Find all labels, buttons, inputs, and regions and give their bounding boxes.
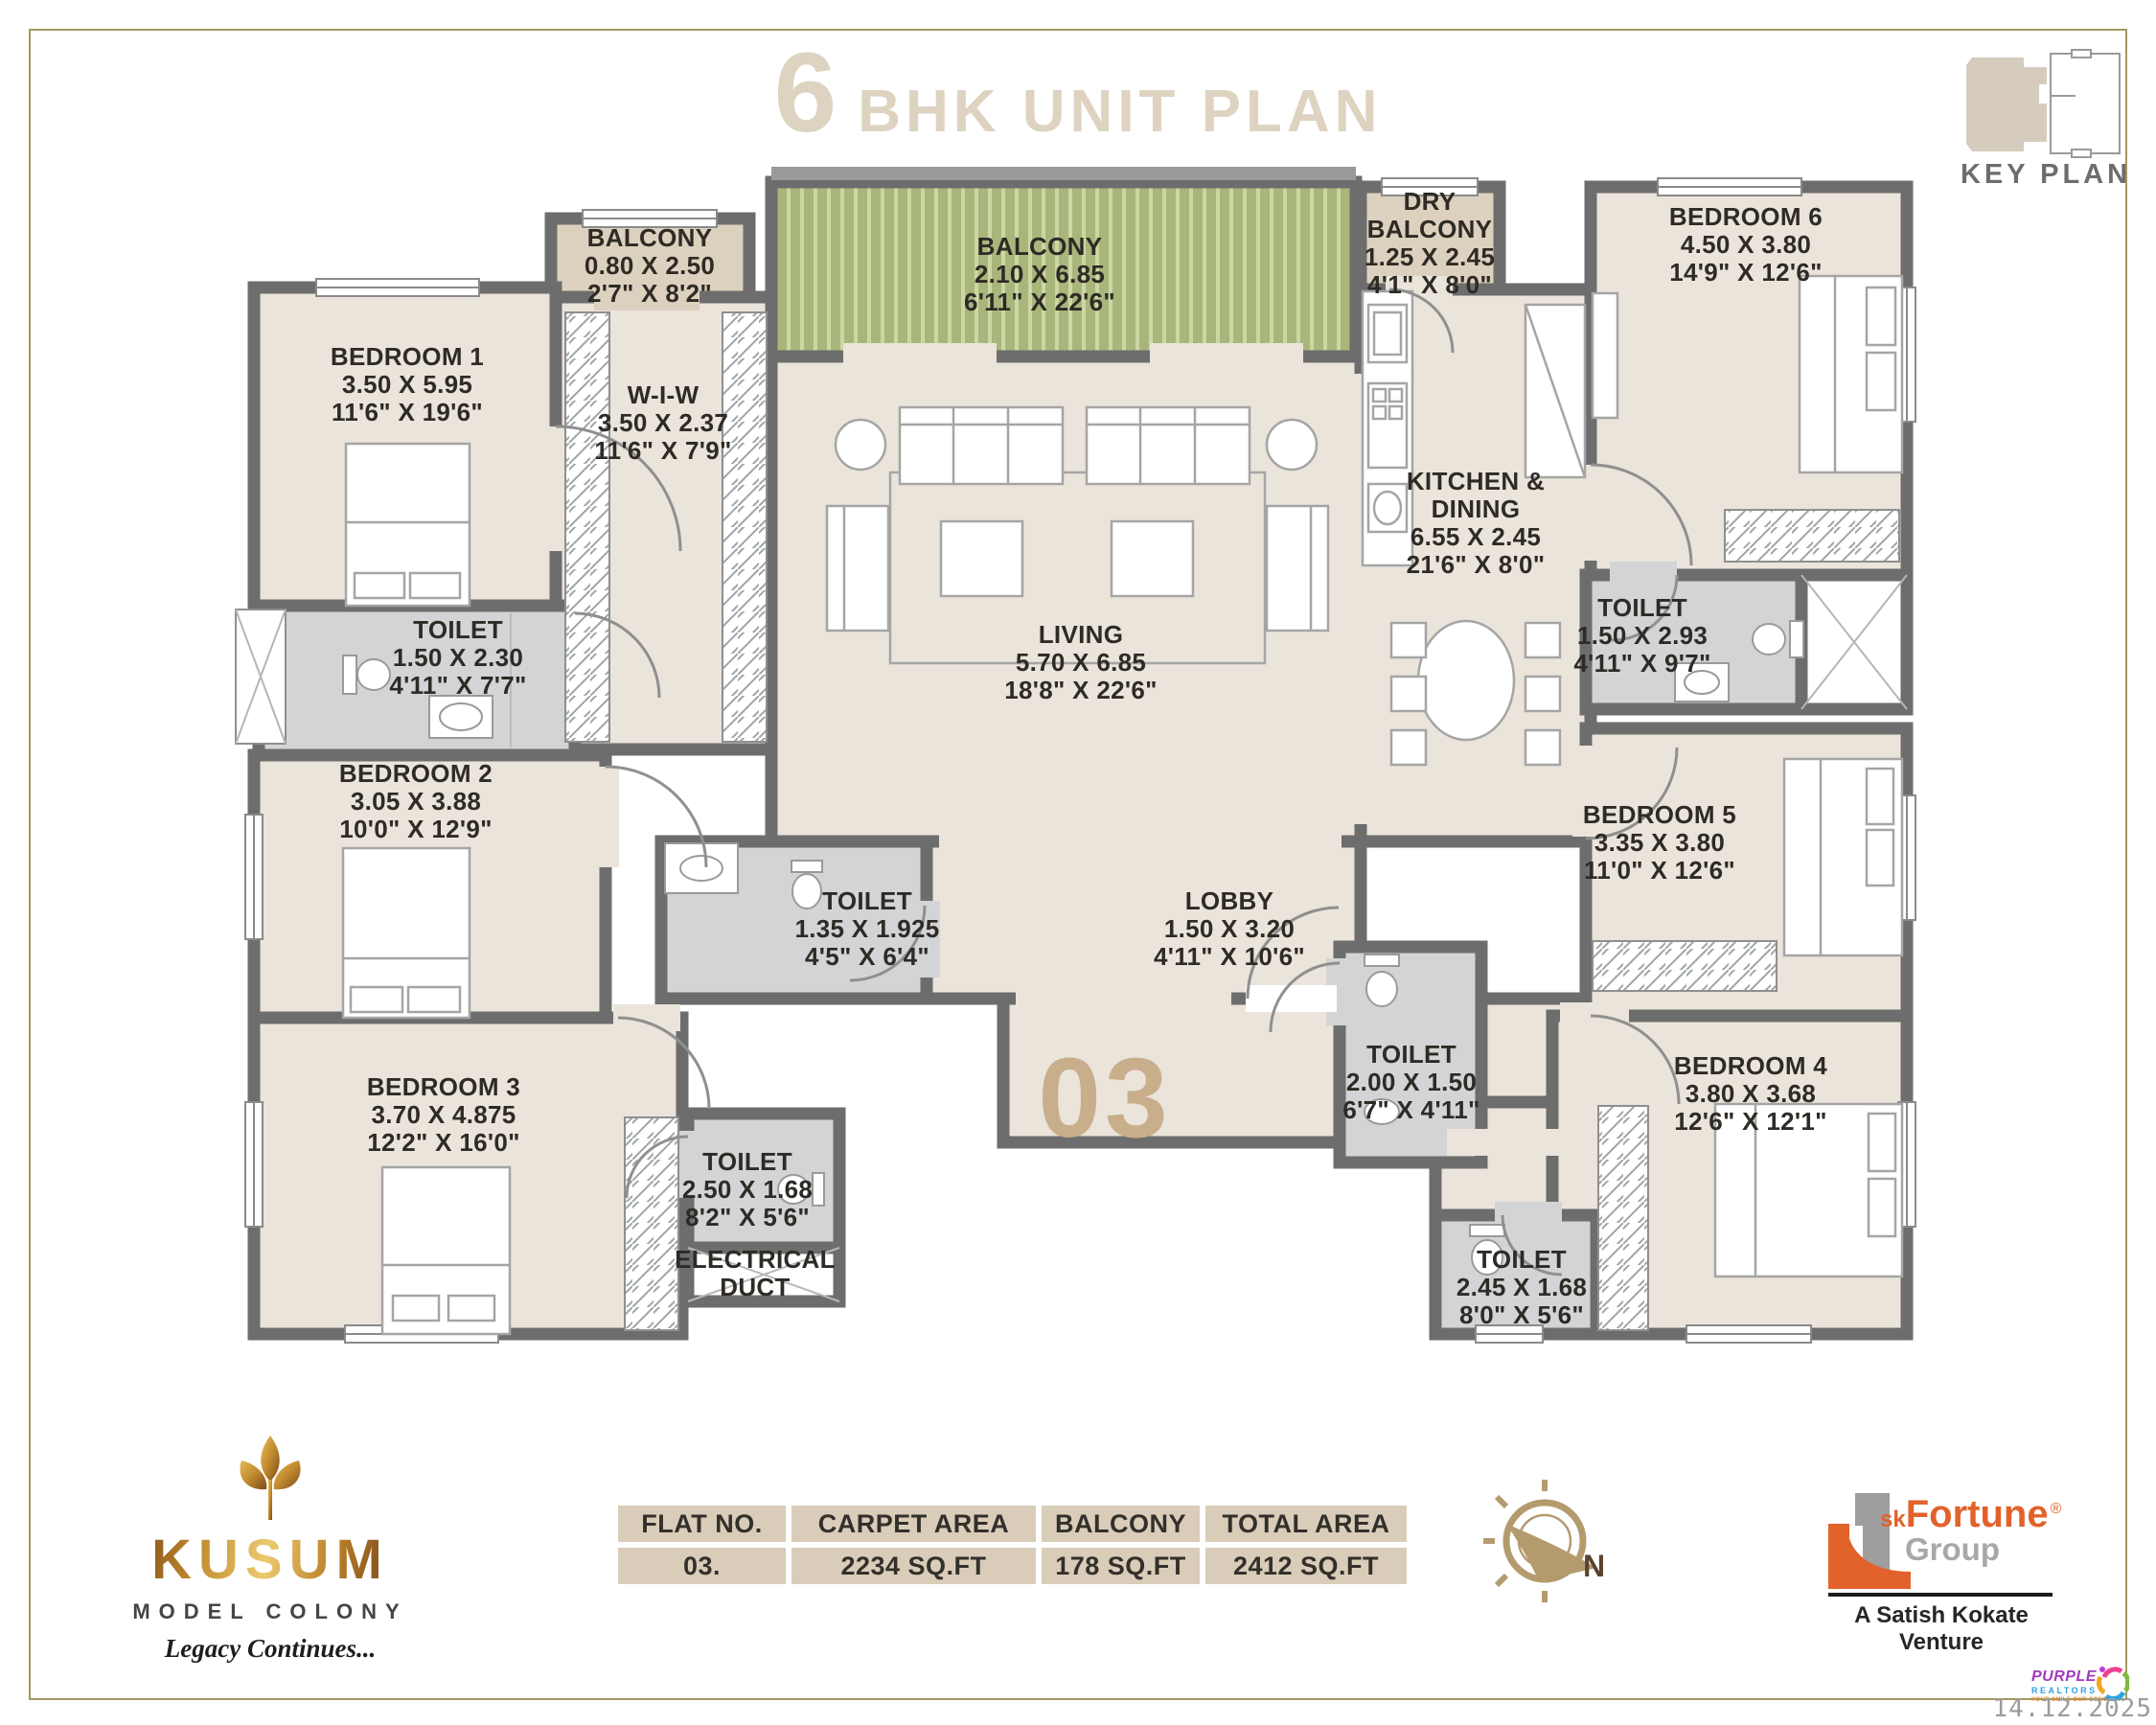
room-dim-m: 3.80 X 3.68	[1597, 1080, 1904, 1108]
wardrobe-wiw-right	[722, 312, 767, 742]
compass-north-label: N	[1583, 1549, 1605, 1584]
wc-toilet-bed4	[1470, 1225, 1504, 1236]
room-dim-m: 3.50 X 2.37	[562, 409, 764, 437]
room-dim-ft: 4'11" X 9'7"	[1523, 650, 1762, 678]
room-dim-ft: 8'2" X 5'6"	[632, 1204, 862, 1231]
title-number: 6	[774, 30, 837, 156]
room-name: TOILET	[1407, 1246, 1637, 1274]
table-header-carpet-area: CARPET AREA	[791, 1506, 1036, 1542]
room-dim-ft: 12'6" X 12'1"	[1597, 1108, 1904, 1136]
page-title: 6BHK UNIT PLAN	[0, 36, 2156, 149]
date-stamp: 14.12.2025	[1903, 1694, 2152, 1723]
room-dim-m: 1.50 X 2.30	[338, 644, 578, 672]
room-label-bedroom-3: BEDROOM 3 3.70 X 4.875 12'2" X 16'0"	[290, 1073, 597, 1157]
room-dim-m: 1.25 X 2.45	[1353, 243, 1506, 271]
room-name: LIVING	[937, 621, 1225, 649]
room-label-bedroom-1: BEDROOM 1 3.50 X 5.95 11'6" X 19'6"	[273, 343, 541, 426]
wc-toilet-bed5	[1365, 954, 1399, 966]
room-dim-m: 3.05 X 3.88	[282, 788, 550, 816]
kusum-brand-name: KUSUM	[151, 1528, 389, 1592]
table-header-balcony: BALCONY	[1042, 1506, 1200, 1542]
room-dim-ft: 12'2" X 16'0"	[290, 1129, 597, 1157]
room-dim-m: 1.50 X 2.93	[1523, 622, 1762, 650]
room-label-bedroom-5: BEDROOM 5 3.35 X 3.80 11'0" X 12'6"	[1525, 801, 1794, 885]
kusum-flower-icon	[234, 1434, 307, 1522]
fortune-name: Fortune	[1906, 1493, 2049, 1536]
balcony-parapet	[771, 167, 1356, 180]
room-label-dry-balcony: DRY BALCONY 1.25 X 2.45 4'1" X 8'0"	[1353, 188, 1506, 299]
room-name: BEDROOM 3	[290, 1073, 597, 1101]
area-table: FLAT NO. CARPET AREA BALCONY TOTAL AREA …	[618, 1506, 1407, 1584]
room-label-electrical-duct: ELECTRICAL DUCT	[659, 1246, 851, 1301]
room-label-bedroom-4: BEDROOM 4 3.80 X 3.68 12'6" X 12'1"	[1597, 1052, 1904, 1136]
key-plan-label: KEY PLAN	[1955, 159, 2137, 191]
purple-name: PURPLE	[2031, 1669, 2099, 1685]
sk-prefix: sk	[1880, 1506, 1906, 1533]
room-dim-ft: 4'11" X 10'6"	[1095, 943, 1364, 971]
sink-toilet-bed1	[429, 696, 493, 738]
room-label-toilet-bed3: TOILET 2.50 X 1.68 8'2" X 5'6"	[632, 1148, 862, 1231]
table-value-carpet-area: 2234 SQ.FT	[791, 1548, 1036, 1584]
room-dim-m: 6.55 X 2.45	[1361, 523, 1591, 551]
room-name: TOILET	[1306, 1041, 1517, 1069]
table-value-total-area: 2412 SQ.FT	[1205, 1548, 1407, 1584]
wc-toilet-bed6	[1790, 621, 1803, 657]
kusum-tagline: Legacy Continues...	[117, 1634, 424, 1664]
room-label-toilet-bed1: TOILET 1.50 X 2.30 4'11" X 7'7"	[338, 616, 578, 700]
room-name: TOILET	[632, 1148, 862, 1176]
room-label-toilet-bed6: TOILET 1.50 X 2.93 4'11" X 9'7"	[1523, 594, 1762, 678]
dining-table	[1418, 621, 1514, 740]
dining-chair	[1391, 677, 1426, 711]
dining-chair	[1525, 730, 1560, 765]
dining-chair	[1391, 623, 1426, 657]
wardrobe-bedroom-6	[1725, 510, 1899, 562]
room-dim-ft: 21'6" X 8'0"	[1361, 551, 1591, 579]
room-dim-ft: 18'8" X 22'6"	[937, 677, 1225, 704]
bed-bedroom-5	[1784, 759, 1902, 955]
bed-bedroom-6	[1800, 276, 1902, 472]
room-dim-m: 1.50 X 3.20	[1095, 915, 1364, 943]
room-label-living: LIVING 5.70 X 6.85 18'8" X 22'6"	[937, 621, 1225, 704]
room-name: BEDROOM 4	[1597, 1052, 1904, 1080]
room-dim-m: 3.70 X 4.875	[290, 1101, 597, 1129]
table-value-balcony: 178 SQ.FT	[1042, 1548, 1200, 1584]
room-label-bedroom-6: BEDROOM 6 4.50 X 3.80 14'9" X 12'6"	[1602, 203, 1890, 287]
room-dim-m: 2.00 X 1.50	[1306, 1069, 1517, 1096]
room-name: BALCONY	[920, 233, 1159, 261]
room-label-toilet-bed5: TOILET 2.00 X 1.50 6'7" X 4'11"	[1306, 1041, 1517, 1124]
room-label-bedroom-2: BEDROOM 2 3.05 X 3.88 10'0" X 12'9"	[282, 760, 550, 843]
room-label-wiw: W-I-W 3.50 X 2.37 11'6" X 7'9"	[562, 381, 764, 465]
room-dim-m: 5.70 X 6.85	[937, 649, 1225, 677]
room-name: KITCHEN & DINING	[1361, 468, 1591, 523]
armchair-left	[827, 506, 888, 631]
room-name: TOILET	[752, 887, 982, 915]
room-dim-ft: 11'0" X 12'6"	[1525, 857, 1794, 885]
room-name: BALCONY	[544, 224, 755, 252]
room-name: TOILET	[1523, 594, 1762, 622]
room-name: DRY BALCONY	[1353, 188, 1506, 243]
title-text: BHK UNIT PLAN	[858, 79, 1382, 145]
room-name: BEDROOM 5	[1525, 801, 1794, 829]
room-label-kitchen-dining: KITCHEN & DINING 6.55 X 2.45 21'6" X 8'0…	[1361, 468, 1591, 579]
armchair-right	[1267, 506, 1328, 631]
dining-chair	[1525, 677, 1560, 711]
table-value-flat-no: 03.	[618, 1548, 786, 1584]
bed-bedroom-2	[343, 848, 470, 1018]
room-dim-ft: 4'5" X 6'4"	[752, 943, 982, 971]
side-table-right	[1267, 420, 1317, 470]
fortune-tagline: A Satish Kokate Venture	[1823, 1602, 2060, 1656]
room-dim-ft: 10'0" X 12'9"	[282, 816, 550, 843]
room-dim-m: 1.35 X 1.925	[752, 915, 982, 943]
bedroom6-closet	[1593, 293, 1617, 418]
compass-icon	[1483, 1480, 1596, 1602]
room-dim-ft: 14'9" X 12'6"	[1602, 259, 1890, 287]
room-dim-ft: 11'6" X 7'9"	[562, 437, 764, 465]
bed-bedroom-1	[346, 444, 470, 606]
room-dim-m: 3.50 X 5.95	[273, 371, 541, 399]
sink-toilet-common	[665, 843, 738, 893]
room-dim-ft: 2'7" X 8'2"	[544, 280, 755, 308]
table-header-flat-no: FLAT NO.	[618, 1506, 786, 1542]
coffee-table-2	[1112, 521, 1193, 596]
kusum-subtitle: MODEL COLONY	[117, 1599, 424, 1624]
room-dim-m: 3.35 X 3.80	[1525, 829, 1794, 857]
coffee-table-1	[941, 521, 1022, 596]
registered-mark: ®	[2051, 1501, 2062, 1518]
fortune-group-label: Group	[1905, 1531, 2000, 1568]
wc-toilet-common	[791, 861, 822, 872]
room-name: TOILET	[338, 616, 578, 644]
room-name: LOBBY	[1095, 887, 1364, 915]
sofa-1	[900, 407, 1063, 484]
room-name: W-I-W	[562, 381, 764, 409]
room-label-balcony-main: BALCONY 2.10 X 6.85 6'11" X 22'6"	[920, 233, 1159, 316]
room-label-balcony-1: BALCONY 0.80 X 2.50 2'7" X 8'2"	[544, 224, 755, 308]
bed-bedroom-3	[382, 1167, 510, 1334]
fortune-divider	[1828, 1593, 2053, 1597]
room-label-lobby: LOBBY 1.50 X 3.20 4'11" X 10'6"	[1095, 887, 1364, 971]
room-dim-m: 0.80 X 2.50	[544, 252, 755, 280]
room-dim-ft: 4'1" X 8'0"	[1353, 271, 1506, 299]
room-name: BEDROOM 1	[273, 343, 541, 371]
room-dim-ft: 4'11" X 7'7"	[338, 672, 578, 700]
room-dim-ft: 6'11" X 22'6"	[920, 288, 1159, 316]
room-dim-ft: 6'7" X 4'11"	[1306, 1096, 1517, 1124]
room-dim-ft: 11'6" X 19'6"	[273, 399, 541, 426]
room-dim-m: 2.45 X 1.68	[1407, 1274, 1637, 1301]
room-name: ELECTRICAL DUCT	[659, 1246, 851, 1301]
sofa-2	[1087, 407, 1250, 484]
room-dim-m: 2.50 X 1.68	[632, 1176, 862, 1204]
side-table-left	[836, 420, 885, 470]
wardrobe-bedroom-5	[1593, 941, 1777, 991]
room-dim-m: 2.10 X 6.85	[920, 261, 1159, 288]
room-label-toilet-common: TOILET 1.35 X 1.925 4'5" X 6'4"	[752, 887, 982, 971]
dining-chair	[1391, 730, 1426, 765]
unit-number: 03	[997, 1041, 1213, 1156]
room-label-toilet-bed4: TOILET 2.45 X 1.68 8'0" X 5'6"	[1407, 1246, 1637, 1329]
room-dim-m: 4.50 X 3.80	[1602, 231, 1890, 259]
room-dim-ft: 8'0" X 5'6"	[1407, 1301, 1637, 1329]
room-name: BEDROOM 6	[1602, 203, 1890, 231]
kusum-logo: KUSUM MODEL COLONY Legacy Continues...	[117, 1434, 424, 1664]
sk-fortune-wordmark: skFortune®	[1880, 1493, 2061, 1536]
room-name: BEDROOM 2	[282, 760, 550, 788]
table-header-total-area: TOTAL AREA	[1205, 1506, 1407, 1542]
